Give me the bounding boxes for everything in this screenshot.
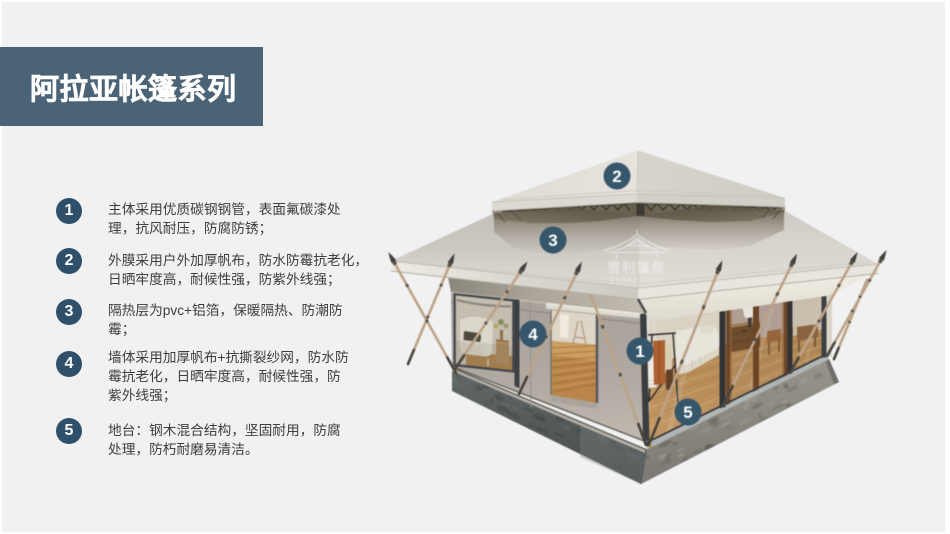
svg-text:4: 4	[528, 325, 538, 344]
svg-text:2: 2	[612, 167, 621, 186]
svg-text:XUELI TENT: XUELI TENT	[609, 277, 665, 285]
svg-text:1: 1	[635, 342, 644, 361]
svg-text:3: 3	[548, 231, 557, 250]
svg-text:5: 5	[683, 403, 692, 422]
svg-text:雪利篷房: 雪利篷房	[607, 260, 666, 275]
